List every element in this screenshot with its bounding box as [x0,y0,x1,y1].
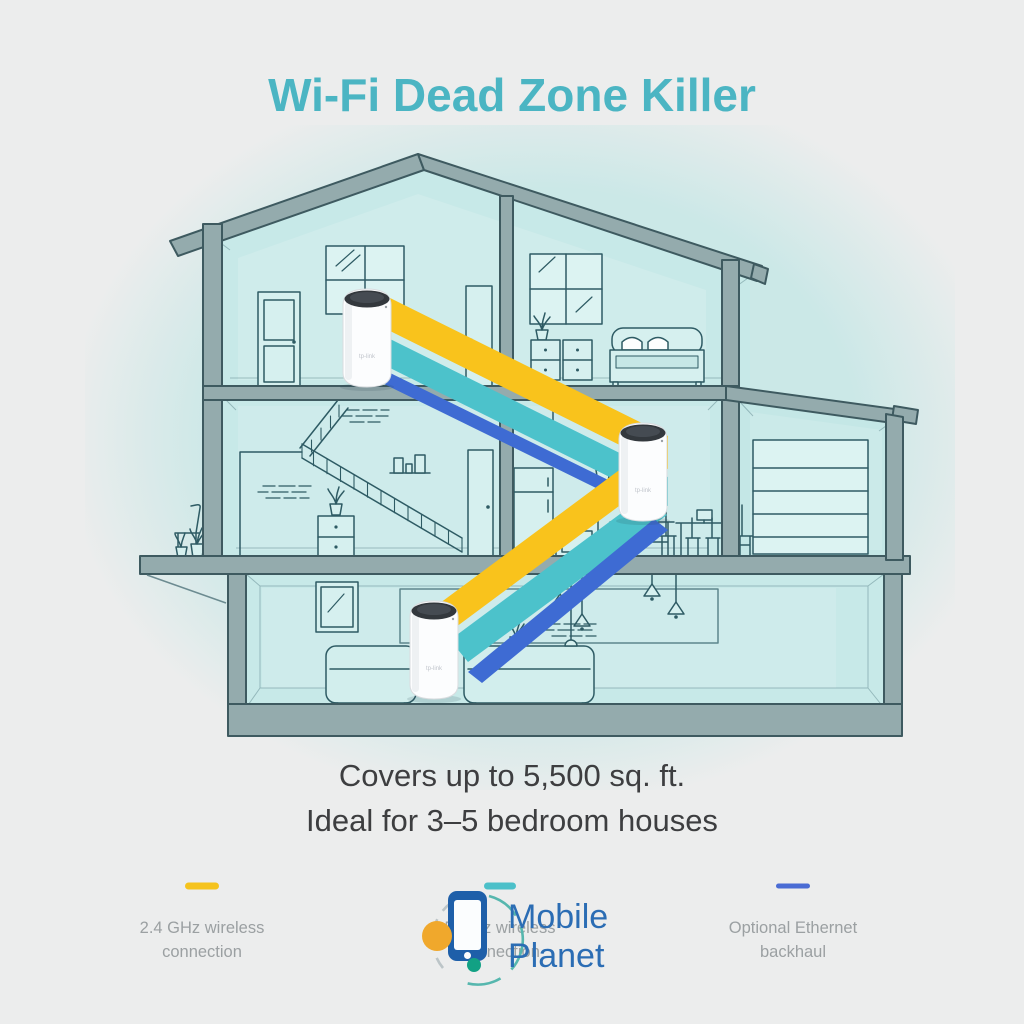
coverage-line-1: Covers up to 5,500 sq. ft. [0,753,1024,798]
legend-item-24ghz: 2.4 GHz wireless connection [92,882,312,964]
bed [610,328,704,388]
watermark-logo: Mobile Planet [414,876,629,992]
legend-label-ethernet-line1: Optional Ethernet [683,916,903,940]
watermark-text: Mobile Planet [508,898,608,976]
legend-label-24ghz-line1: 2.4 GHz wireless [92,916,312,940]
mesh-unit-kitchen [616,423,670,525]
infographic-canvas: Wi-Fi Dead Zone Killer tp-link [0,0,1024,1024]
watermark-line-1: Mobile [508,898,608,937]
foundation-beam [228,704,902,736]
ground-right-wall [884,574,902,708]
mesh-unit-attic [340,289,394,391]
green-planet-dot [467,958,481,972]
sofa [326,646,416,707]
garage-right-wall [886,414,903,560]
orange-planet-dot [422,921,452,951]
watermark-line-2: Planet [508,937,608,976]
interior-door [468,450,493,558]
roof-eave-cap [751,264,768,284]
legend-label-24ghz-line2: connection [92,940,312,964]
legend-dash-24ghz [184,882,220,890]
wall-mirror [316,582,358,632]
legend-dash-ethernet [775,882,811,890]
ground-left-wall [228,574,246,708]
phone-screen [454,900,481,950]
legend-item-ethernet: Optional Ethernet backhaul [683,882,903,964]
bedroom-window [530,254,602,324]
coverage-text: Covers up to 5,500 sq. ft. Ideal for 3–5… [0,753,1024,843]
attic-door [258,292,300,388]
house-diagram: tp-link [0,0,1024,1024]
coverage-line-2: Ideal for 3–5 bedroom houses [0,798,1024,843]
legend-label-ethernet-line2: backhaul [683,940,903,964]
garage-door [753,440,868,554]
phone-home-button [464,952,471,959]
right-wall [722,260,739,566]
balcony-support [147,575,226,603]
mesh-unit-living-room [407,601,461,703]
